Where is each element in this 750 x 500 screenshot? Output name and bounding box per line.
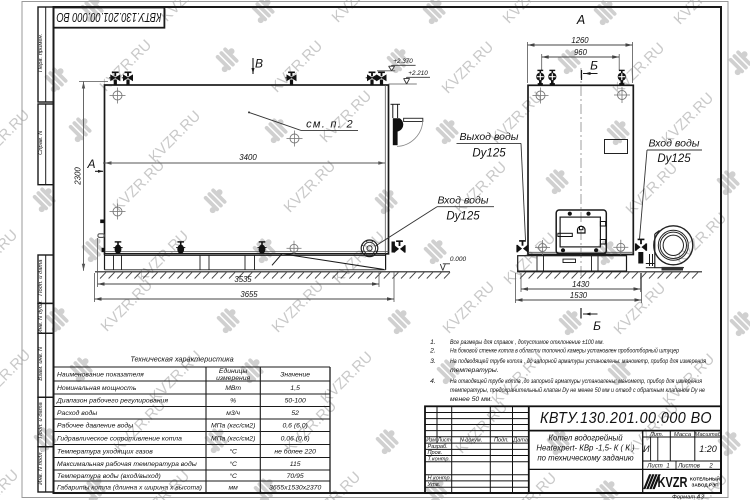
svg-text:1.: 1. (430, 339, 436, 346)
svg-text:3655х1530х2370: 3655х1530х2370 (269, 484, 321, 491)
svg-text:Инв. N дубл.: Инв. N дубл. (38, 300, 44, 334)
svg-text:см. п. 2: см. п. 2 (306, 119, 354, 131)
svg-text:м3/ч: м3/ч (226, 410, 240, 417)
svg-text:На отводящей трубе котла ,до з: На отводящей трубе котла ,до запорной ар… (450, 377, 702, 385)
svg-text:Вход воды: Вход воды (438, 195, 489, 207)
svg-text:Температура уходящих газов: Температура уходящих газов (57, 447, 153, 455)
svg-text:Котел водогрейный: Котел водогрейный (548, 434, 623, 443)
svg-text:мм: мм (228, 484, 238, 491)
svg-text:Dy125: Dy125 (472, 148, 506, 160)
svg-text:3.: 3. (430, 358, 436, 365)
svg-text:3535: 3535 (234, 274, 251, 284)
svg-text:А: А (576, 13, 585, 27)
svg-text:менее 50 мм.: менее 50 мм. (450, 396, 492, 403)
svg-text:50-100: 50-100 (285, 398, 306, 405)
svg-text:температуры, предохранительный: температуры, предохранительный клапан Dу… (450, 386, 705, 394)
svg-text:На боковой стенке котла в обла: На боковой стенке котла в области топочн… (450, 347, 679, 355)
svg-text:Пров.: Пров. (428, 450, 443, 456)
svg-text:КВТУ.130.201.00.000 ВО: КВТУ.130.201.00.000 ВО (540, 410, 712, 427)
svg-text:Подп. и дата: Подп. и дата (38, 259, 44, 296)
svg-text:70/95: 70/95 (287, 473, 304, 480)
svg-text:1: 1 (666, 464, 669, 470)
svg-text:Dy125: Dy125 (446, 211, 480, 223)
svg-text:Взам. инв. N: Взам. инв. N (38, 346, 44, 381)
svg-text:1:20: 1:20 (699, 444, 717, 454)
svg-text:Т.контр.: Т.контр. (428, 456, 451, 462)
svg-text:ЗАВОД РЭП: ЗАВОД РЭП (691, 483, 718, 488)
svg-text:115: 115 (290, 461, 301, 468)
svg-text:Разраб.: Разраб. (428, 444, 448, 450)
svg-text:Габариты котла (длинна х ширин: Габариты котла (длинна х ширина х высота… (57, 483, 202, 491)
svg-text:В: В (255, 57, 263, 71)
svg-text:Лист: Лист (646, 464, 662, 470)
svg-text:Расход воды: Расход воды (57, 409, 97, 417)
svg-text:0,06 (0,6): 0,06 (0,6) (281, 435, 310, 442)
svg-text:Справ. N: Справ. N (38, 130, 44, 155)
svg-text:МВт: МВт (225, 385, 241, 392)
svg-text:°С: °С (229, 447, 237, 455)
svg-text:4.: 4. (430, 378, 436, 385)
svg-text:Подп.: Подп. (494, 438, 509, 444)
svg-text:Б: Б (590, 59, 598, 73)
svg-text:температуры.: температуры. (450, 367, 499, 374)
svg-text:Масса: Масса (674, 432, 692, 438)
svg-text:Инв. N подл.: Инв. N подл. (38, 451, 44, 485)
svg-text:°С: °С (229, 460, 237, 468)
svg-text:Гидравлическое сопротивление к: Гидравлическое сопротивление котла (57, 434, 182, 442)
svg-text:Б: Б (593, 319, 601, 333)
svg-text:Формат А3: Формат А3 (672, 495, 704, 500)
svg-text:На подводящей трубе котла ,: На подводящей трубе котла , до запорной … (450, 357, 706, 365)
svg-text:2.: 2. (429, 348, 436, 355)
svg-text:0.000: 0.000 (450, 256, 467, 263)
svg-text:2300: 2300 (74, 167, 83, 186)
svg-text:А: А (86, 157, 95, 171)
svg-text:Температура воды (вход/выход): Температура воды (вход/выход) (57, 472, 161, 480)
svg-text:МПа (кгс/см2): МПа (кгс/см2) (211, 435, 255, 442)
svg-text:1260: 1260 (571, 35, 588, 45)
svg-text:N докум.: N докум. (460, 438, 483, 444)
svg-text:+2.210: +2.210 (408, 70, 428, 77)
svg-text:Вход воды: Вход воды (649, 138, 700, 150)
svg-text:Изм: Изм (426, 438, 436, 444)
svg-text:1,5: 1,5 (290, 385, 300, 392)
svg-text:Dy125: Dy125 (657, 153, 691, 165)
svg-text:Дата: Дата (512, 438, 528, 444)
svg-text:Техническая характеристика: Техническая характеристика (130, 355, 233, 364)
svg-text:Номинальная мощность: Номинальная мощность (57, 385, 137, 392)
svg-text:Масштаб: Масштаб (695, 432, 722, 438)
svg-text:Выход воды: Выход воды (459, 131, 518, 143)
svg-text:И: И (643, 444, 650, 454)
svg-text:Утв.: Утв. (427, 482, 441, 488)
svg-text:3400: 3400 (239, 152, 257, 162)
svg-text:Н.контр.: Н.контр. (428, 476, 452, 482)
svg-text:Лист: Лист (437, 438, 452, 444)
svg-text:Рабочее давление воды: Рабочее давление воды (57, 422, 133, 430)
svg-text:не более 220: не более 220 (274, 447, 316, 455)
svg-text:по техническому заданию: по техническому заданию (537, 454, 633, 463)
svg-text:3655: 3655 (240, 289, 257, 299)
svg-text:960: 960 (574, 47, 587, 57)
svg-text:1430: 1430 (572, 279, 589, 289)
svg-text:Все размеры для справок , допу: Все размеры для справок , допустимое отк… (450, 338, 604, 346)
svg-text:КВТУ.130.201.00.000 ВО: КВТУ.130.201.00.000 ВО (56, 10, 161, 24)
svg-text:Перв. примен.: Перв. примен. (38, 34, 44, 73)
svg-text:МПа (кгс/см2): МПа (кгс/см2) (211, 423, 255, 430)
svg-text:2: 2 (708, 464, 713, 470)
svg-text:+2.370: +2.370 (393, 58, 413, 65)
svg-text:Подп. и дата: Подп. и дата (38, 401, 44, 438)
svg-text:КОТЕЛЬНЫЙ: КОТЕЛЬНЫЙ (690, 475, 720, 482)
svg-text:Наименование показателя: Наименование показателя (57, 371, 144, 378)
svg-text:измерения: измерения (216, 375, 250, 382)
svg-text:KVZR: KVZR (658, 474, 688, 491)
svg-text:°С: °С (229, 472, 237, 480)
svg-text:1530: 1530 (570, 290, 587, 300)
svg-text:Максимальная рабочая температу: Максимальная рабочая температура воды (57, 460, 197, 468)
svg-text:52: 52 (291, 410, 299, 417)
svg-text:0,6 (6,0): 0,6 (6,0) (282, 423, 307, 430)
svg-text:%: % (230, 398, 236, 405)
svg-text:Листов: Листов (677, 464, 700, 470)
svg-text:Диапазон рабочего регулировани: Диапазон рабочего регулирования (56, 397, 168, 405)
svg-text:Heatexpert- КВр -1,5- К ( К ): Heatexpert- КВр -1,5- К ( К ) (536, 444, 635, 453)
svg-text:Значение: Значение (280, 371, 310, 378)
